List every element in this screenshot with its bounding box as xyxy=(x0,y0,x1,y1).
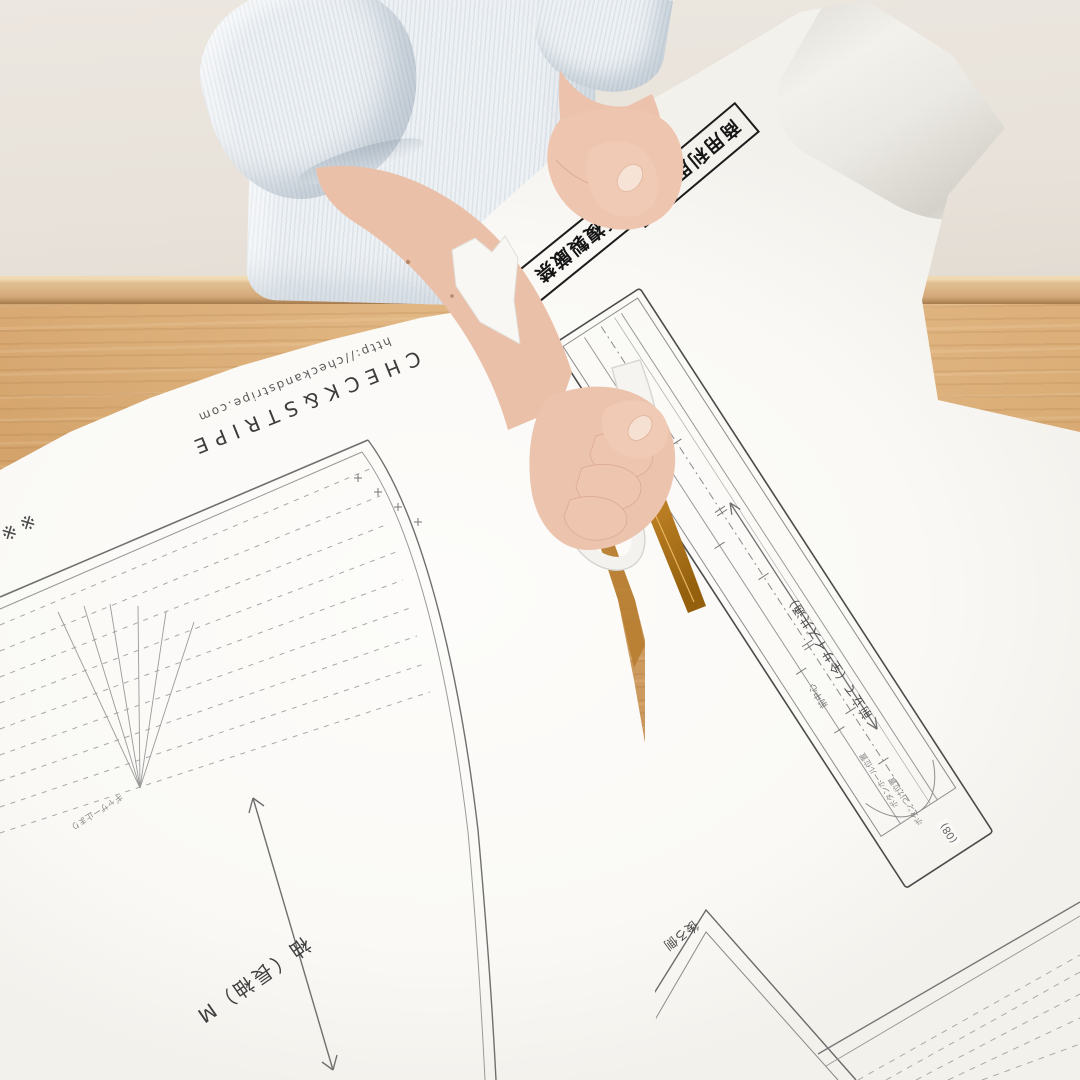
hands-and-scissors xyxy=(0,0,1080,1080)
left-hand xyxy=(452,70,683,344)
photo-hands-cutting-sewing-pattern: CHECK&STRIPE http://checkandstripe.com ※… xyxy=(0,0,1080,1080)
beauty-mark xyxy=(450,294,454,298)
beauty-mark xyxy=(406,260,410,264)
right-forearm xyxy=(316,166,572,430)
